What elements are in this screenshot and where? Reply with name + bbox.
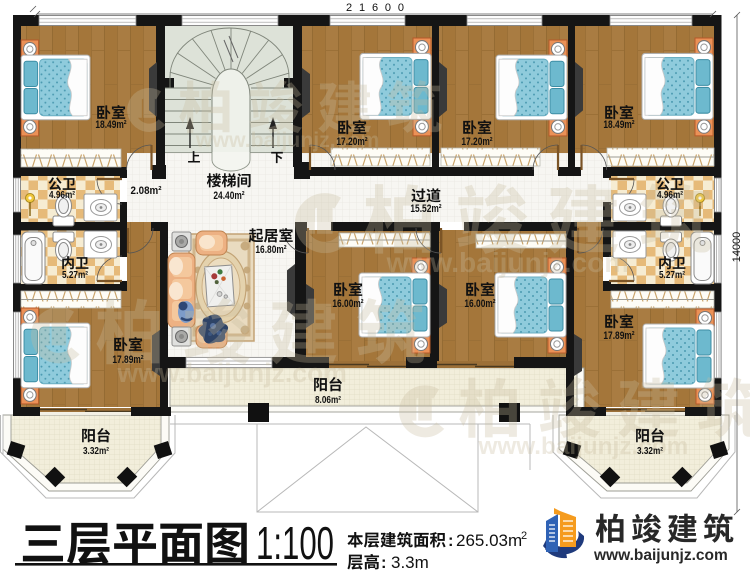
svg-text:www.baijunjz.com: www.baijunjz.com [386, 247, 630, 278]
svg-text:17.20m²: 17.20m² [336, 136, 367, 148]
svg-text:3.3m: 3.3m [391, 553, 429, 572]
svg-text:16.00m²: 16.00m² [332, 298, 363, 310]
svg-text:24.40m²: 24.40m² [213, 190, 244, 202]
svg-text:5.27m²: 5.27m² [659, 269, 685, 281]
svg-text:4.96m²: 4.96m² [657, 189, 683, 201]
svg-text:www.baijunjz.com: www.baijunjz.com [116, 358, 347, 388]
svg-text::: : [381, 554, 387, 572]
svg-text:1:100: 1:100 [256, 517, 334, 569]
svg-text:3.32m²: 3.32m² [637, 445, 663, 457]
svg-text:www.baijunjz.com: www.baijunjz.com [593, 547, 728, 564]
svg-text:14000: 14000 [731, 232, 743, 263]
svg-text:2: 2 [521, 530, 527, 542]
svg-text:17.89m²: 17.89m² [112, 354, 143, 366]
svg-text:17.20m²: 17.20m² [461, 136, 492, 148]
svg-text:16.00m²: 16.00m² [464, 298, 495, 310]
svg-text:3.32m²: 3.32m² [83, 445, 109, 457]
svg-text:17.89m²: 17.89m² [603, 330, 634, 342]
svg-text:4.96m²: 4.96m² [49, 189, 75, 201]
svg-text:16.80m²: 16.80m² [255, 244, 286, 256]
svg-text::: : [448, 532, 454, 550]
svg-text:8.06m²: 8.06m² [315, 394, 341, 406]
svg-text:18.49m²: 18.49m² [603, 119, 634, 131]
svg-text:2.08m²: 2.08m² [131, 185, 162, 197]
svg-text:15.52m²: 15.52m² [410, 203, 441, 215]
svg-text:265.03m: 265.03m [456, 531, 522, 550]
svg-text:18.49m²: 18.49m² [95, 119, 126, 131]
svg-text:5.27m²: 5.27m² [62, 269, 88, 281]
